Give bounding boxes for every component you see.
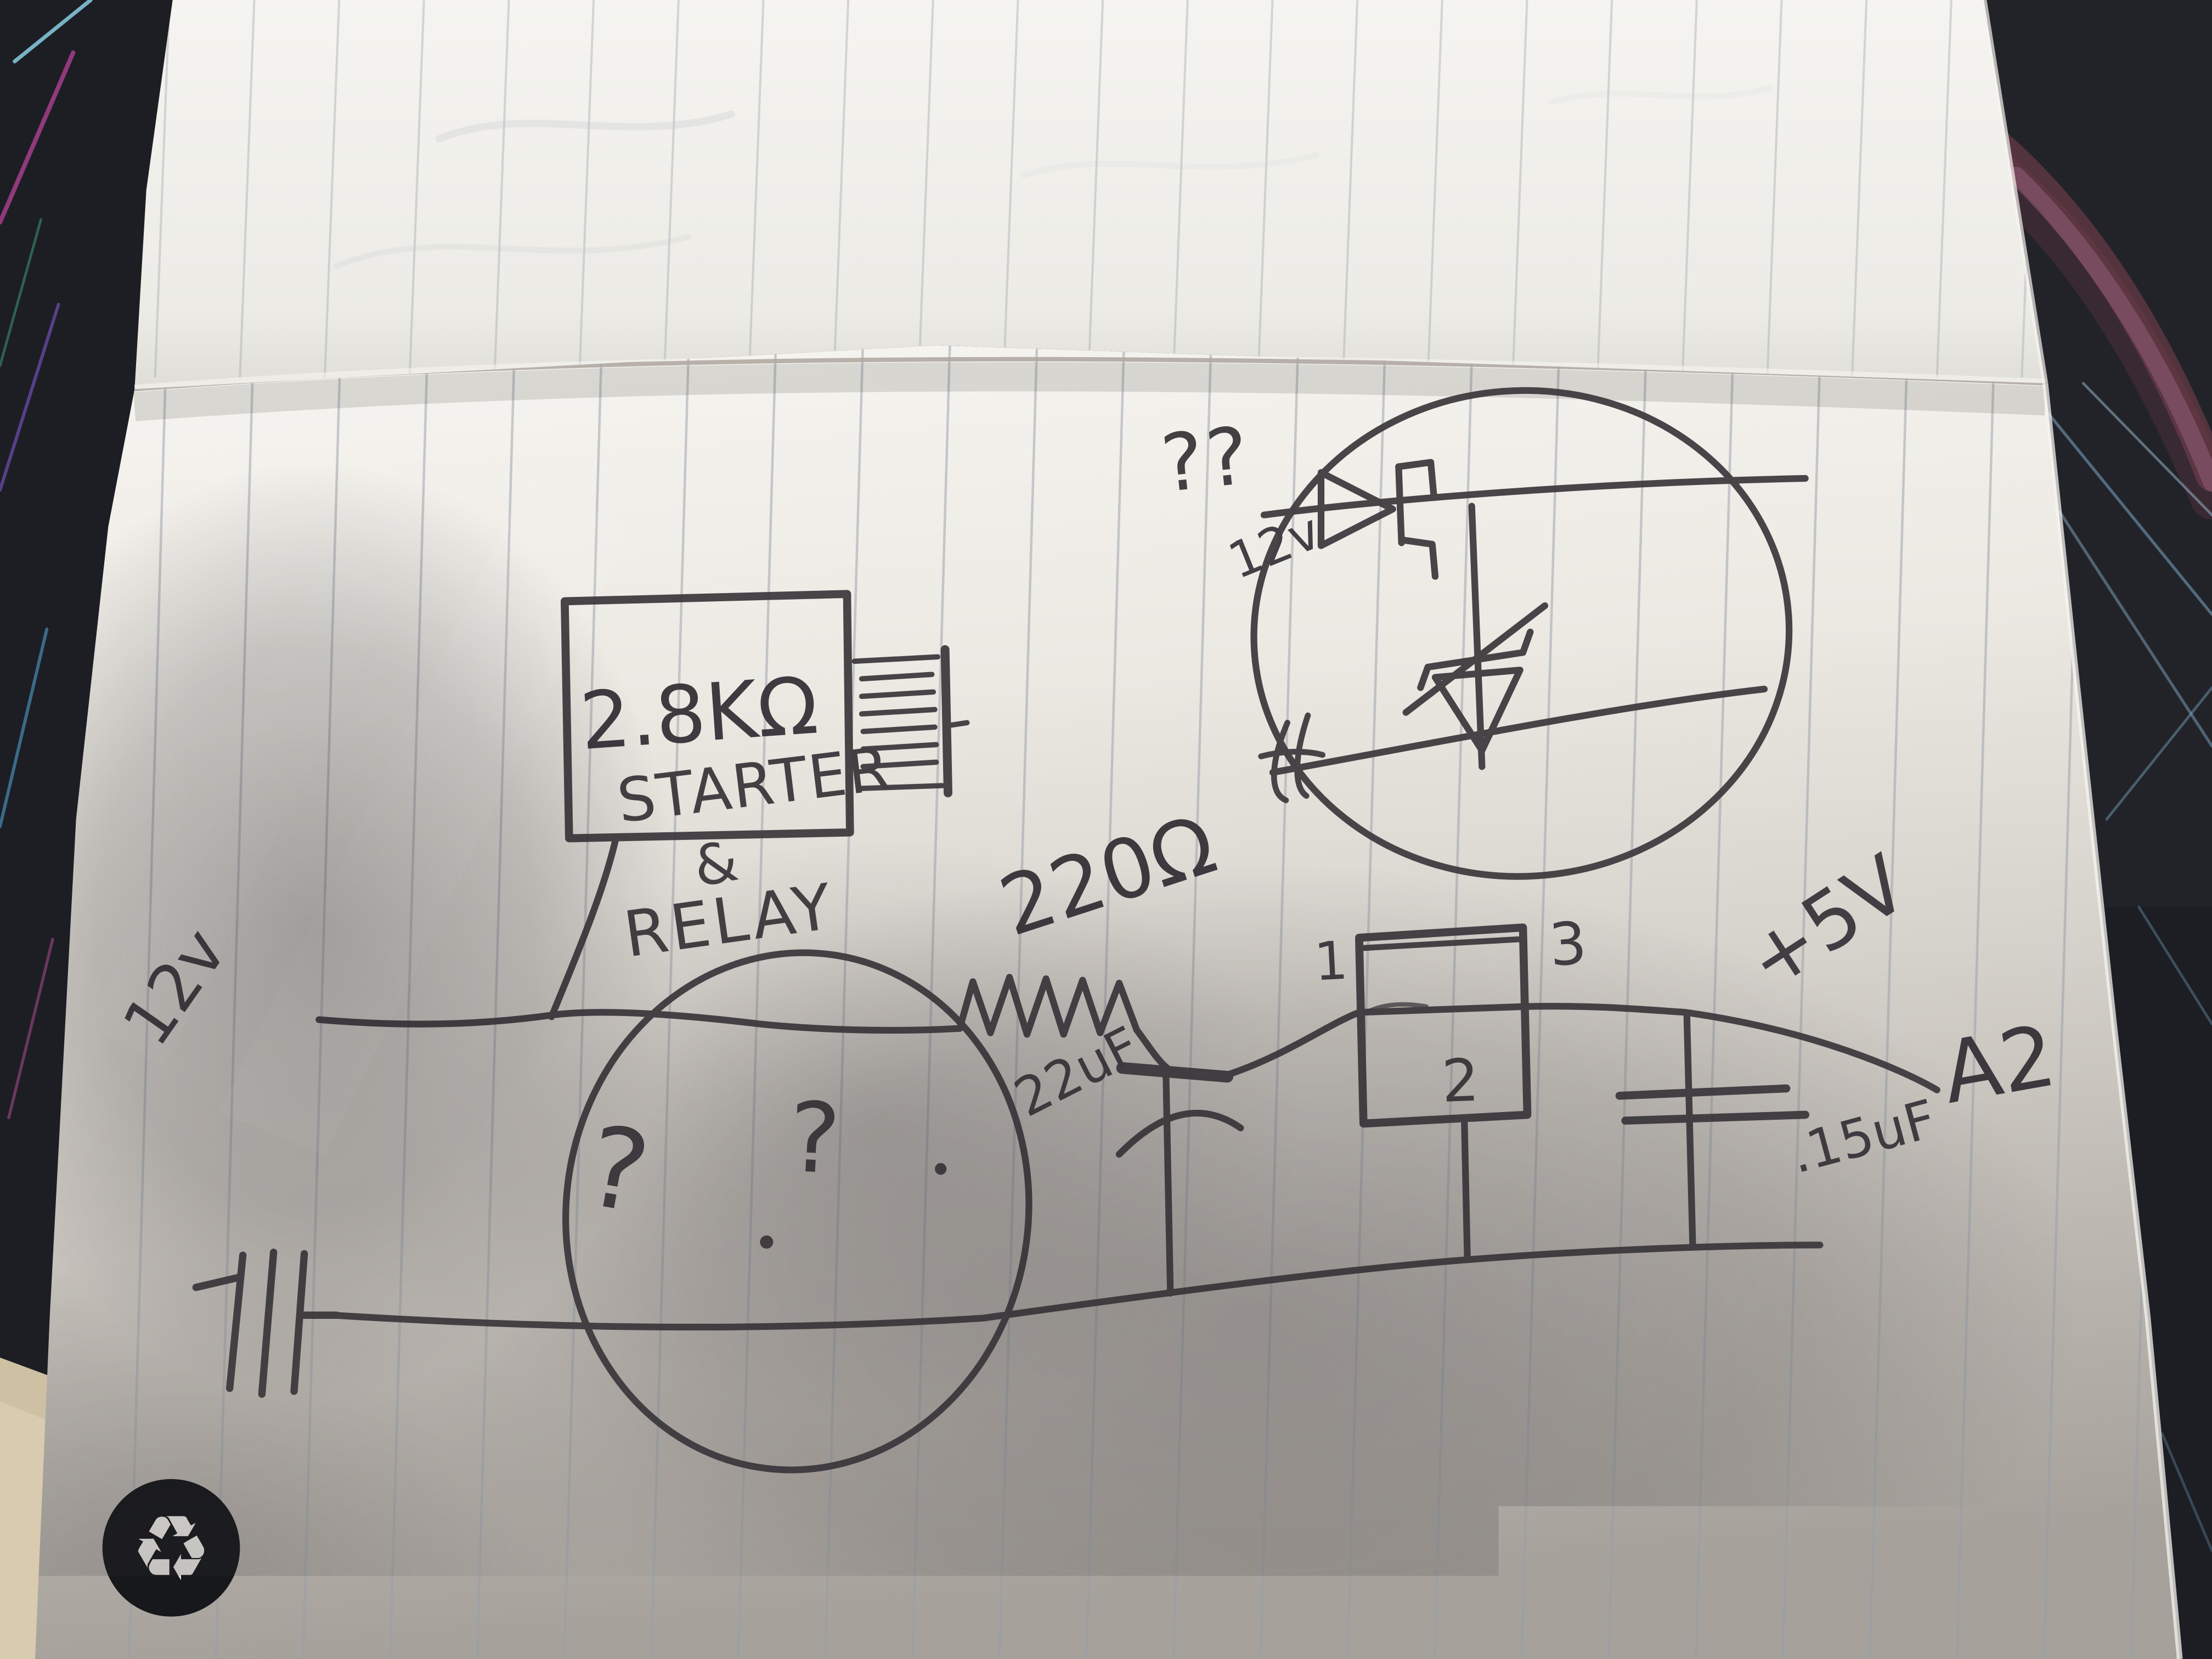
notebook-photo: 2.8KΩ STARTER & RELAY 12v 220Ω (0, 0, 2212, 1659)
soft-shadow (454, 841, 1302, 1412)
unknown-marks-top: ?? (1157, 409, 1256, 510)
top-page (134, 0, 2045, 389)
